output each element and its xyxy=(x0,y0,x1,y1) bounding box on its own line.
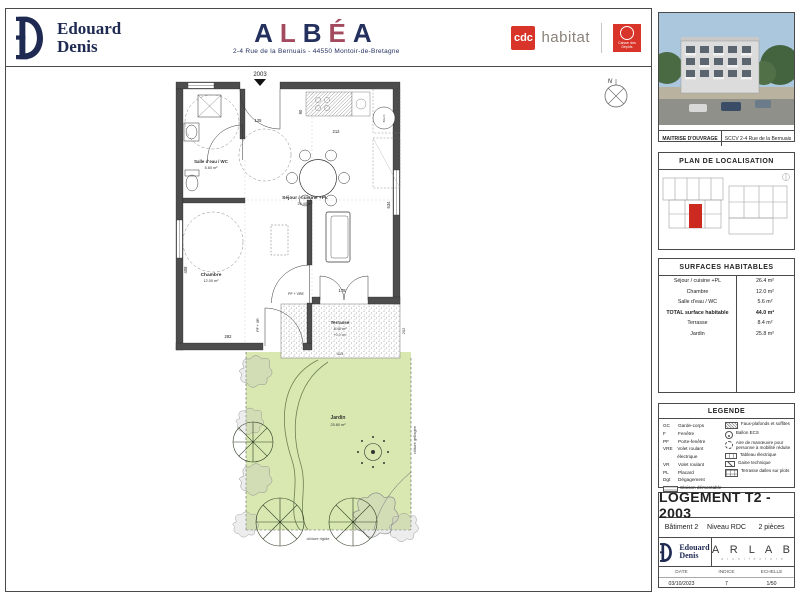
legend-row: Gaine technique xyxy=(725,461,791,467)
surfaces-title: SURFACES HABITABLES xyxy=(659,259,794,276)
salle-eau-area-value: 5.60 m² xyxy=(205,166,219,170)
edouard-denis-name: Edouard Denis xyxy=(57,20,121,56)
edouard-denis-logo-small: Edouard Denis xyxy=(659,538,712,566)
legend-row: F Fenêtre xyxy=(663,430,722,438)
pf-vre-label: PF + VRE xyxy=(288,292,304,296)
unit-highlight xyxy=(689,204,702,228)
compass-icon: N xyxy=(605,78,627,107)
legend-row: PF Porte-fenêtre xyxy=(663,438,722,446)
sejour-label: Séjour / cuisine +PL xyxy=(282,195,328,201)
legend-box: LEGENDE GC Garde-corps F Fenêtre PF Port… xyxy=(658,403,795,488)
kitchen-counter xyxy=(306,92,370,116)
albea-wordmark: ALBÉA xyxy=(121,20,511,46)
dim-408: 408 xyxy=(183,266,188,274)
salle-eau-label: Salle d'eau / WC xyxy=(194,159,229,164)
chambre-area-value: 12.00 m² xyxy=(204,279,220,283)
building-photo xyxy=(659,13,794,125)
jardin-area: clôture rigide clôture grillagée Jardin … xyxy=(233,352,419,546)
project-address: 2-4 Rue de la Bernuais - 44550 Montoir-d… xyxy=(121,48,511,55)
caisse-des-depots-logo: Caisse des Dépôts xyxy=(613,24,641,52)
table-row-total: TOTAL surface habitable 44.0 m² xyxy=(659,308,794,319)
table-row: Jardin 25.8 m² xyxy=(659,329,794,340)
plan-sheet: { "header": { "edouard_denis": { "name_l… xyxy=(0,0,800,600)
dim-634: 634 xyxy=(386,201,391,209)
surfaces-box: SURFACES HABITABLES Séjour / cuisine +PL… xyxy=(658,258,795,393)
entry-marker: 2003 xyxy=(253,72,267,86)
chambre-label: Chambre xyxy=(201,272,222,278)
jardin-label: Jardin xyxy=(330,415,345,421)
legend-abbreviations: GC Garde-corps F Fenêtre PF Porte-fenêtr… xyxy=(663,422,722,492)
edouard-denis-logo: Edouard Denis xyxy=(6,16,121,60)
unit-info-row: Bâtiment 2 Niveau RDC 2 pièces xyxy=(659,518,794,538)
terrasse-area-value: 8.40 m² xyxy=(334,327,348,331)
pf-vr-label: PF + VR xyxy=(256,318,260,332)
legend-row: Terrasse dalles sur plots xyxy=(725,469,791,477)
unit-title: LOGEMENT T2 - 2003 xyxy=(659,493,794,518)
header-divider xyxy=(601,23,602,53)
legend-row: Tableau électrique xyxy=(725,453,791,459)
table-row: Chambre 12.0 m² xyxy=(659,287,794,298)
surfaces-table: Séjour / cuisine +PL 26.4 m² Chambre 12.… xyxy=(659,276,794,393)
dim-202: 202 xyxy=(401,327,406,334)
terrasse-level-note: +0.0 cm xyxy=(334,333,347,337)
maitrise-ouvrage-label: MAITRISE D'OUVRAGE xyxy=(659,131,722,146)
turning-circles xyxy=(183,95,291,272)
hatch-icon xyxy=(725,422,738,429)
cdc-habitat-logo: cdc habitat Caisse des Dépôts xyxy=(511,23,651,53)
meta-labels-row: DATE INDICE ECHELLE xyxy=(659,567,794,578)
cdc-square-icon: cdc xyxy=(511,26,535,50)
indice-value: 7 xyxy=(704,578,749,590)
jardin-area-value: 25.80 m² xyxy=(331,423,347,427)
date-label: DATE xyxy=(659,567,704,577)
localisation-box: PLAN DE LOCALISATION xyxy=(658,152,795,250)
legend-title: LEGENDE xyxy=(659,404,794,419)
arlab-logo: A R L A B a r c h i t e c t u r e xyxy=(712,538,794,566)
legend-row: VRE Volet roulant électrique xyxy=(663,445,722,461)
terrasse-area: Terrasse 8.40 m² +0.0 cm 413 202 xyxy=(281,304,406,358)
bec-label: B.E.C. xyxy=(382,114,386,123)
caisse-circle-icon xyxy=(620,26,634,40)
dim-212: 212 xyxy=(333,129,341,134)
legend-row: Aire de manœuvre pour personne à mobilit… xyxy=(725,441,791,451)
date-value: 03/10/2023 xyxy=(659,578,704,590)
meta-values-row: 03/10/2023 7 1/50 xyxy=(659,578,794,590)
localisation-title: PLAN DE LOCALISATION xyxy=(659,153,794,170)
key-plan xyxy=(659,170,794,249)
legend-row: PL Placard xyxy=(663,469,722,477)
legend-row: GC Garde-corps xyxy=(663,422,722,430)
turning-circle-icon xyxy=(725,441,733,449)
north-label: N xyxy=(608,78,613,85)
dim-90: 90 xyxy=(298,109,303,114)
building-label: Bâtiment 2 xyxy=(659,518,704,537)
maitrise-ouvrage-value: SCCV 2-4 Rue de la Bernuais xyxy=(722,131,794,146)
electric-panel-icon xyxy=(725,453,737,459)
dim-282: 282 xyxy=(225,334,233,339)
legend-row: Faux-plafonds et soffites xyxy=(725,422,791,429)
edouard-denis-monogram-icon xyxy=(16,16,50,60)
photo-caption: MAITRISE D'OUVRAGE SCCV 2-4 Rue de la Be… xyxy=(659,130,794,146)
level-label: Niveau RDC xyxy=(704,518,749,537)
logos-row: Edouard Denis A R L A B a r c h i t e c … xyxy=(659,538,794,567)
terrasse-label: Terrasse xyxy=(331,320,350,325)
echelle-label: ECHELLE xyxy=(749,567,794,577)
dim-413: 413 xyxy=(337,351,344,356)
bathroom-fixtures xyxy=(184,95,221,191)
legend-row: Dgt Dégagement xyxy=(663,476,722,484)
ballon-ecs-icon xyxy=(725,431,733,439)
table-row: Salle d'eau / WC 5.6 m² xyxy=(659,297,794,308)
cloture-rigide-label: clôture rigide xyxy=(307,536,331,541)
dim-125: 125 xyxy=(255,118,263,123)
pieces-label: 2 pièces xyxy=(749,518,794,537)
legend-row: Ballon ECS xyxy=(725,431,791,439)
legend-symbols: Faux-plafonds et soffites Ballon ECS Air… xyxy=(725,422,791,492)
table-row: Séjour / cuisine +PL 26.4 m² xyxy=(659,276,794,287)
cdc-habitat-text: habitat xyxy=(541,29,590,46)
duct-icon xyxy=(725,461,735,467)
titleblock: LOGEMENT T2 - 2003 Bâtiment 2 Niveau RDC… xyxy=(658,492,795,588)
edouard-denis-monogram-icon xyxy=(660,543,675,562)
unit-number-label: 2003 xyxy=(253,72,267,78)
echelle-value: 1/50 xyxy=(749,578,794,590)
grid-icon xyxy=(725,469,738,477)
cloture-grillagee-label: clôture grillagée xyxy=(412,425,417,454)
dim-178: 178 xyxy=(339,288,347,293)
project-photo-box: MAITRISE D'OUVRAGE SCCV 2-4 Rue de la Be… xyxy=(658,12,795,142)
legend-row: VR Volet roulant xyxy=(663,461,722,469)
floor-plan: clôture rigide clôture grillagée Jardin … xyxy=(168,70,650,590)
sheet-header: Edouard Denis ALBÉA 2-4 Rue de la Bernua… xyxy=(6,9,651,67)
albea-logo: ALBÉA 2-4 Rue de la Bernuais - 44550 Mon… xyxy=(121,20,511,55)
key-plan-compass-icon xyxy=(783,174,790,181)
table-row: Terrasse 8.4 m² xyxy=(659,318,794,329)
indice-label: INDICE xyxy=(704,567,749,577)
sejour-area-value: 26.40 m² xyxy=(298,202,314,206)
